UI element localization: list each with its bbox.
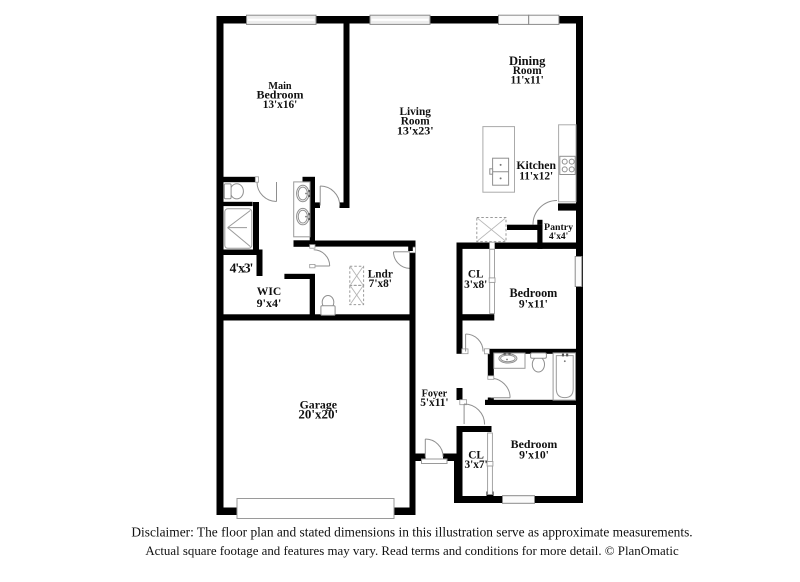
svg-text:5'x11': 5'x11' <box>420 397 448 409</box>
svg-text:20'x20': 20'x20' <box>298 406 338 421</box>
svg-text:Disclaimer: The floor plan and: Disclaimer: The floor plan and stated di… <box>131 524 692 539</box>
svg-text:13'x16': 13'x16' <box>263 99 298 111</box>
svg-text:4'x3': 4'x3' <box>230 261 253 276</box>
svg-text:11'x12': 11'x12' <box>519 170 553 182</box>
svg-text:11'x11': 11'x11' <box>511 74 544 86</box>
svg-text:3'x8': 3'x8' <box>464 279 487 291</box>
svg-text:13'x23': 13'x23' <box>397 124 434 138</box>
svg-text:9'x4': 9'x4' <box>257 296 282 310</box>
svg-text:Actual square footage and feat: Actual square footage and features may v… <box>145 544 679 558</box>
svg-text:9'x11': 9'x11' <box>519 298 548 311</box>
svg-text:3'x7': 3'x7' <box>464 459 487 471</box>
svg-text:4'x4': 4'x4' <box>549 232 568 242</box>
svg-text:7'x8': 7'x8' <box>369 278 392 290</box>
svg-text:9'x10': 9'x10' <box>519 449 549 462</box>
